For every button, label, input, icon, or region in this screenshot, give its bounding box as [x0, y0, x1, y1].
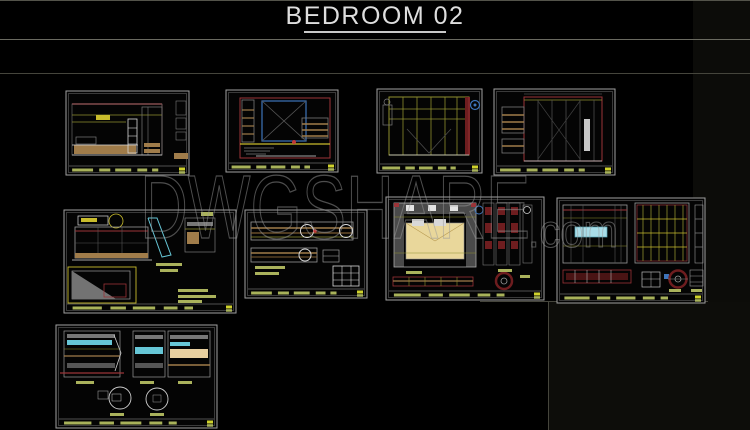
cad-linework	[520, 275, 530, 278]
cad-linework	[160, 269, 178, 272]
cad-linework	[664, 274, 669, 279]
titleblock-segment	[133, 307, 155, 310]
titleblock-segment	[110, 307, 125, 310]
cad-linework	[67, 340, 112, 345]
cad-linework	[406, 271, 422, 274]
titleblock-corner-tag	[207, 421, 213, 424]
titleblock-segment	[164, 307, 178, 310]
cad-linework	[74, 145, 136, 154]
titleblock-segment	[251, 292, 272, 295]
titleblock-segment	[564, 169, 574, 172]
cad-linework	[135, 363, 163, 368]
cad-linework	[144, 143, 160, 147]
titleblock-segment	[394, 294, 421, 297]
titleblock-segment	[429, 294, 443, 297]
titleblock-corner-tag	[695, 296, 701, 299]
cad-linework	[144, 149, 160, 153]
cad-linework	[584, 119, 590, 151]
cad-linework	[255, 272, 279, 275]
titleblock-segment	[542, 169, 558, 172]
titleblock-segment	[64, 422, 91, 425]
titleblock-segment	[661, 297, 668, 300]
cad-linework	[140, 381, 154, 384]
titleblock-segment	[478, 294, 491, 297]
cad-linework	[81, 218, 97, 222]
cad-linework	[170, 349, 208, 358]
titleblock-segment	[149, 422, 162, 425]
titleblock-corner-tag	[534, 293, 540, 296]
titleblock-segment	[99, 422, 113, 425]
titleblock-segment	[115, 169, 131, 172]
titleblock-corner-tag	[207, 424, 213, 427]
titleblock-segment	[643, 297, 655, 300]
cad-linework	[474, 104, 477, 107]
cad-linework	[67, 363, 115, 368]
cad-linework	[170, 335, 208, 339]
cad-linework	[178, 381, 192, 384]
cad-canvas[interactable]: DWGSHARE.com	[0, 0, 750, 430]
titleblock-corner-tag	[357, 294, 363, 297]
titleblock-corner-tag	[605, 168, 611, 171]
cad-linework	[669, 289, 681, 292]
cad-linework	[150, 413, 164, 416]
titleblock-segment	[616, 297, 635, 300]
watermark-suffix: .com	[528, 205, 618, 257]
titleblock-segment	[316, 292, 326, 295]
cad-linework	[292, 140, 296, 144]
titleblock-segment	[294, 292, 310, 295]
titleblock-segment	[564, 297, 589, 300]
titleblock-segment	[449, 294, 470, 297]
titleblock-corner-tag	[605, 171, 611, 174]
cad-linework	[96, 115, 110, 120]
cad-linework	[566, 273, 628, 280]
titleblock-corner-tag	[226, 306, 232, 309]
titleblock-segment	[120, 422, 141, 425]
cad-linework	[255, 266, 285, 269]
cad-preview: DWGSHARE.com BEDROOM 02	[0, 0, 750, 430]
cad-linework	[110, 413, 124, 416]
titleblock-segment	[278, 292, 289, 295]
cad-linework	[178, 300, 202, 303]
titleblock-corner-tag	[695, 299, 701, 302]
titleblock-corner-tag	[534, 296, 540, 299]
titleblock-segment	[579, 169, 585, 172]
cad-linework	[135, 347, 163, 354]
titleblock-segment	[99, 169, 110, 172]
watermark-text: DWGSHARE	[140, 158, 530, 258]
cad-linework	[178, 295, 216, 298]
cad-linework	[498, 269, 512, 272]
cad-linework	[75, 253, 148, 258]
titleblock-corner-tag	[226, 309, 232, 312]
titleblock-segment	[330, 292, 336, 295]
titleblock-segment	[597, 297, 610, 300]
cad-linework	[67, 334, 115, 338]
titleblock-segment	[184, 307, 193, 310]
titleblock-segment	[169, 422, 177, 425]
background-region	[549, 302, 750, 430]
cad-linework	[178, 289, 208, 292]
cad-linework	[76, 381, 94, 384]
titleblock-segment	[73, 307, 102, 310]
cad-linework	[170, 342, 190, 346]
cad-linework	[135, 335, 163, 339]
cad-linework	[156, 263, 182, 266]
titleblock-corner-tag	[357, 291, 363, 294]
cad-linework	[691, 289, 702, 292]
titleblock-segment	[72, 169, 93, 172]
titleblock-segment	[497, 294, 505, 297]
sheet-section-details[interactable]	[56, 325, 217, 428]
